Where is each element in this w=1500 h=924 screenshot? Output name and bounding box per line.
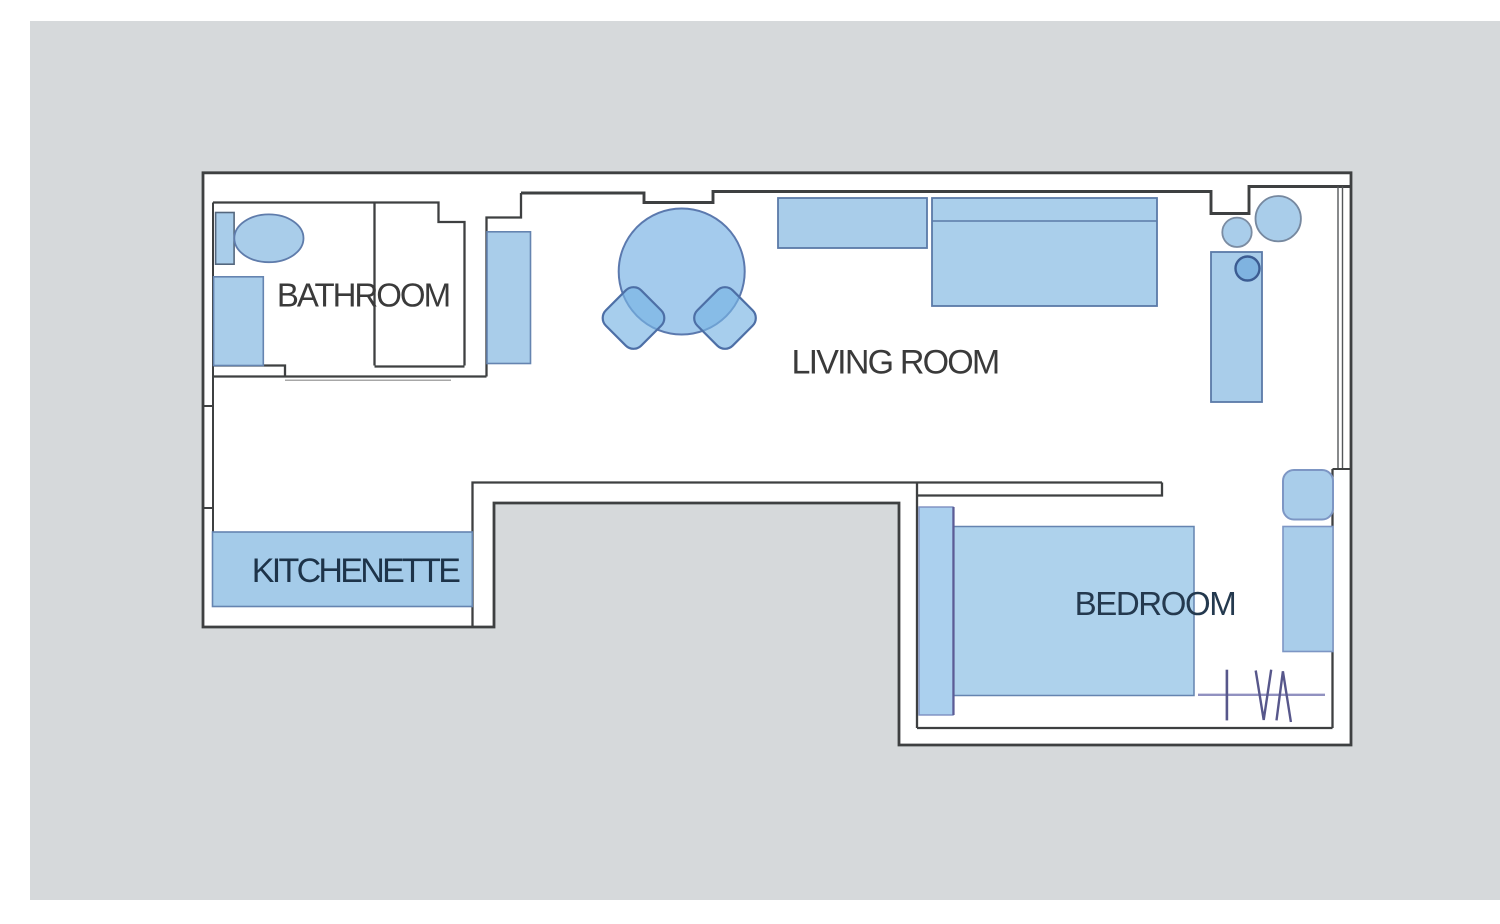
- svg-text:LIVING ROOM: LIVING ROOM: [792, 344, 999, 382]
- svg-text:BATHROOM: BATHROOM: [277, 277, 449, 314]
- svg-text:BEDROOM: BEDROOM: [1075, 585, 1236, 622]
- svg-text:KITCHENETTE: KITCHENETTE: [252, 552, 460, 590]
